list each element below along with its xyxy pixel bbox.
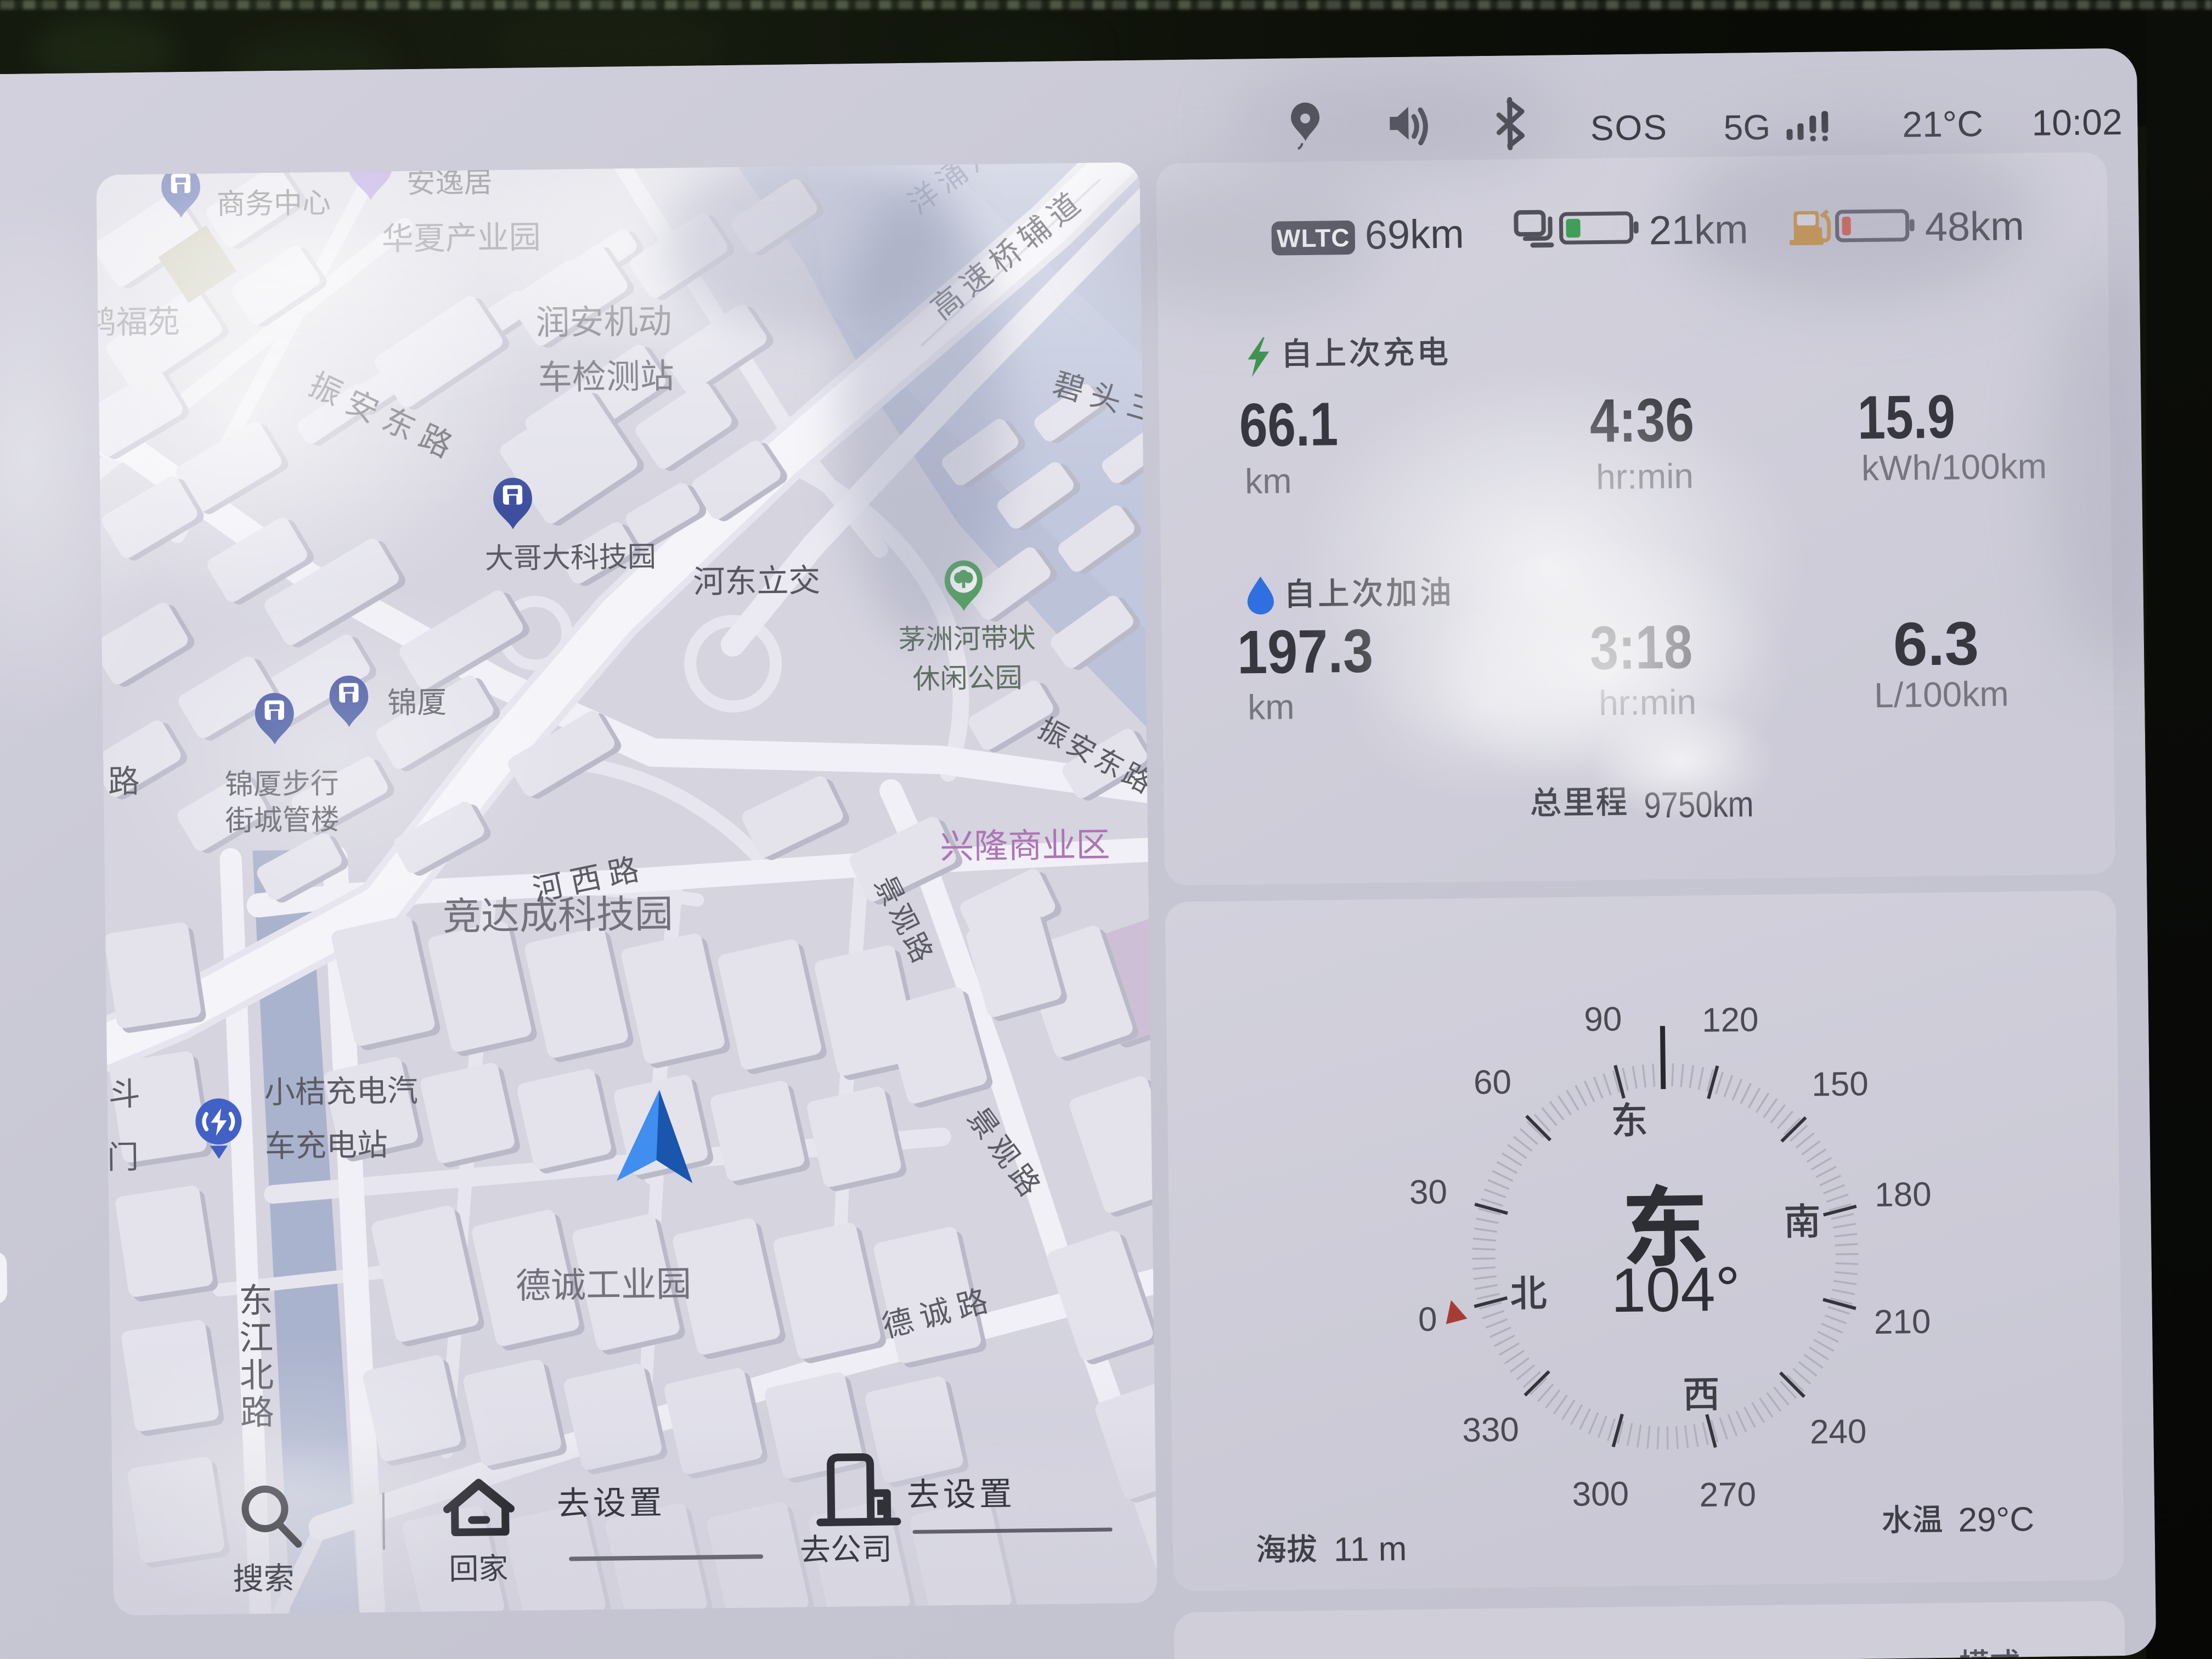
svg-text:300: 300	[1572, 1475, 1629, 1514]
svg-text:330: 330	[1462, 1411, 1519, 1449]
svg-text:60: 60	[1474, 1063, 1512, 1102]
svg-text:6.3: 6.3	[1893, 609, 1979, 679]
svg-text:29°C: 29°C	[1958, 1500, 2034, 1539]
svg-text:104°: 104°	[1611, 1254, 1741, 1325]
svg-text:0: 0	[1418, 1301, 1437, 1339]
svg-text:30: 30	[1409, 1173, 1448, 1211]
svg-text:5G: 5G	[1723, 108, 1770, 148]
svg-text:270: 270	[1699, 1476, 1756, 1514]
svg-text:150: 150	[1812, 1065, 1869, 1103]
svg-text:kWh/100km: kWh/100km	[1861, 446, 2047, 488]
svg-text:km: km	[1248, 687, 1295, 727]
svg-text:240: 240	[1810, 1413, 1867, 1451]
svg-text:90: 90	[1584, 1000, 1622, 1039]
svg-text:15.9: 15.9	[1857, 382, 1956, 452]
svg-text:km: km	[1245, 461, 1292, 501]
svg-text:66.1: 66.1	[1239, 390, 1339, 459]
svg-text:11 m: 11 m	[1334, 1530, 1407, 1569]
svg-text:210: 210	[1874, 1303, 1931, 1341]
svg-text:SOS: SOS	[1590, 108, 1668, 148]
svg-text:120: 120	[1702, 1001, 1759, 1039]
svg-text:L/100km: L/100km	[1874, 674, 2009, 715]
svg-text:10:02: 10:02	[2032, 101, 2123, 143]
svg-text:180: 180	[1875, 1176, 1932, 1214]
